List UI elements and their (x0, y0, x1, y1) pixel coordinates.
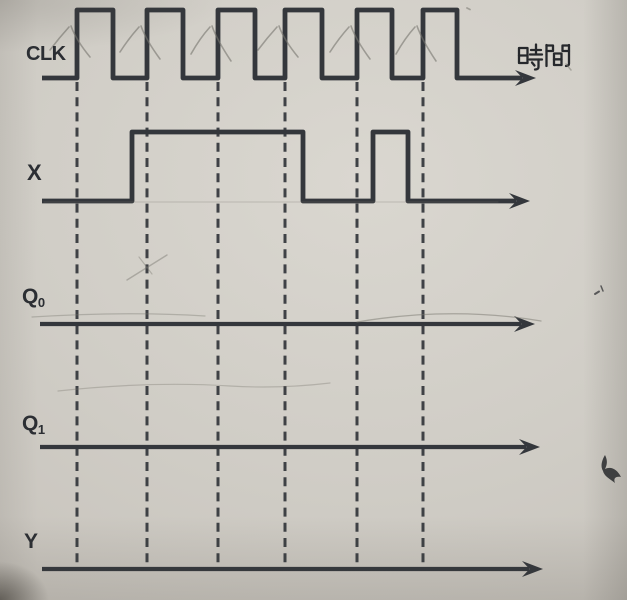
waveform-clk (42, 10, 522, 78)
time-axis-label-glyph-8 (532, 63, 535, 66)
ink-mark-3 (601, 286, 603, 291)
pencil-checkmark-4-a (258, 27, 277, 50)
pencil-checkmark-2-b (141, 26, 160, 59)
label-q0-base: Q (22, 285, 38, 308)
time-axis-label-glyph-7 (535, 60, 539, 70)
waveform-x (42, 132, 516, 201)
ink-mark-2 (595, 292, 599, 295)
label-q1: Q1 (22, 413, 45, 436)
pencil-checkmark-3-a (191, 27, 210, 54)
label-q1-base: Q (22, 412, 38, 435)
label-q0: Q0 (22, 286, 45, 309)
label-clk: CLK (26, 44, 66, 64)
pencil-mark-8 (467, 8, 470, 10)
pencil-checkmark-1-b (71, 26, 90, 57)
label-x: X (27, 162, 41, 184)
time-axis-label-glyph-12 (566, 45, 569, 66)
pencil-mark-3 (357, 314, 541, 322)
pencil-checkmark-3-b (212, 26, 231, 61)
pencil-checkmark-6-b (417, 26, 436, 61)
pencil-checkmark-5-a (330, 27, 349, 52)
waveform-canvas (0, 0, 627, 600)
label-y: Y (24, 531, 38, 552)
pencil-checkmark-4-b (279, 26, 298, 57)
ink-mark-1 (602, 455, 621, 483)
pencil-mark-4 (32, 314, 205, 317)
pencil-checkmark-6-a (396, 27, 415, 54)
pencil-mark-5 (58, 383, 330, 391)
label-q1-sub: 1 (38, 422, 45, 437)
label-q0-sub: 0 (38, 295, 45, 310)
timing-diagram-photo: CLK X Q0 Q1 Y 時間 (0, 0, 627, 600)
pencil-checkmark-5-b (351, 26, 370, 59)
pencil-checkmark-2-a (120, 27, 139, 52)
